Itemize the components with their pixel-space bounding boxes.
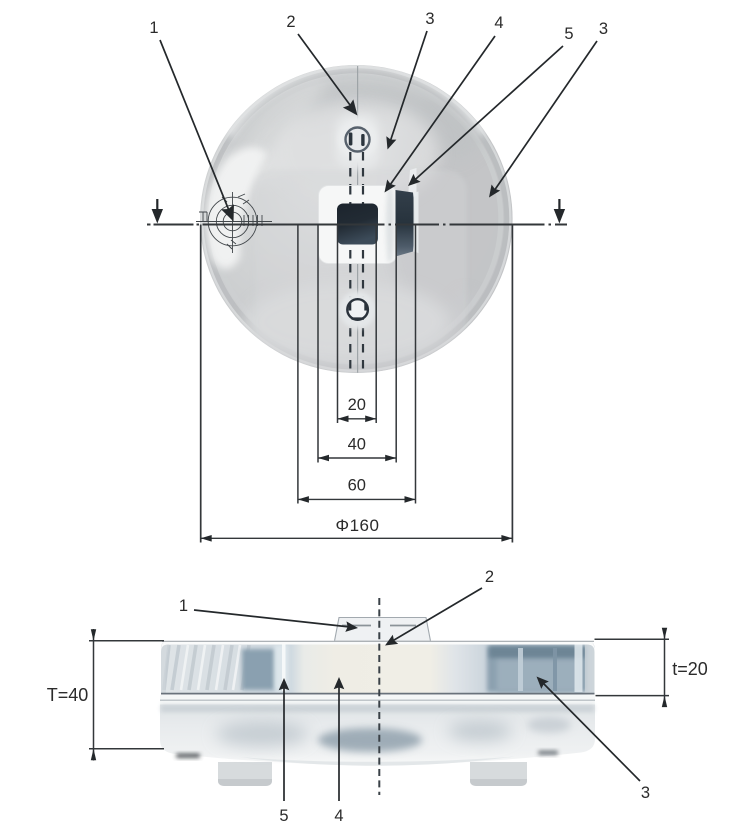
svg-text:2: 2 xyxy=(485,568,494,586)
svg-text:4: 4 xyxy=(494,14,503,32)
svg-text:T=40: T=40 xyxy=(47,685,89,705)
svg-text:3: 3 xyxy=(641,784,650,802)
svg-text:5: 5 xyxy=(279,807,288,825)
svg-text:1: 1 xyxy=(149,19,158,37)
svg-text:3: 3 xyxy=(425,10,434,28)
svg-text:2: 2 xyxy=(286,13,295,31)
svg-text:Φ160: Φ160 xyxy=(336,516,380,535)
svg-text:1: 1 xyxy=(179,597,188,615)
svg-text:60: 60 xyxy=(348,477,366,495)
svg-text:t=20: t=20 xyxy=(672,659,708,679)
svg-text:5: 5 xyxy=(564,25,573,43)
svg-text:4: 4 xyxy=(334,807,343,825)
svg-text:40: 40 xyxy=(348,436,366,454)
svg-text:20: 20 xyxy=(348,396,366,414)
svg-text:3: 3 xyxy=(599,20,608,38)
